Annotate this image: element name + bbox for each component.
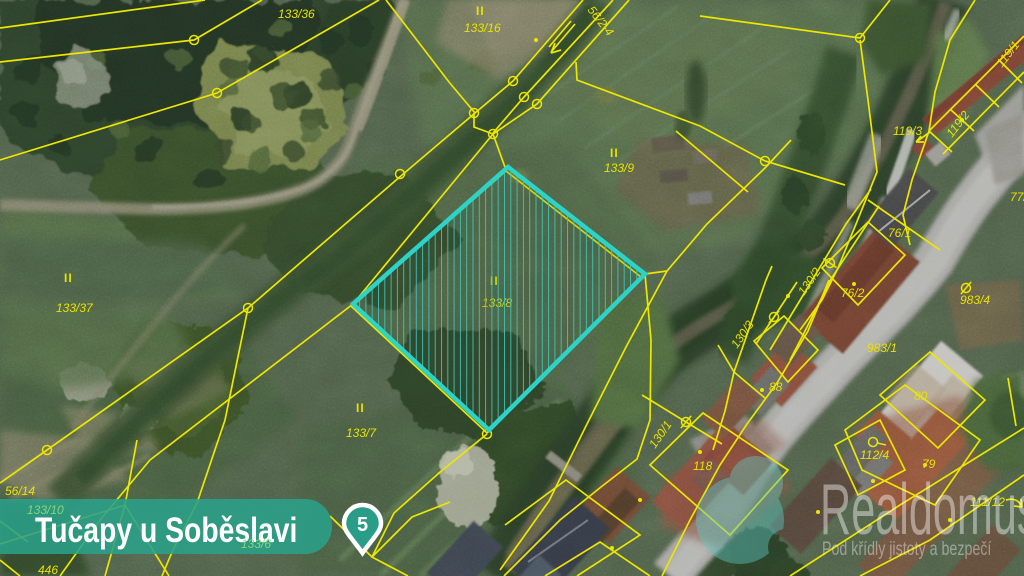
svg-text:133/10: 133/10 <box>27 503 64 517</box>
svg-text:76/1: 76/1 <box>888 226 911 240</box>
svg-text:88: 88 <box>769 380 783 394</box>
svg-text:983/1: 983/1 <box>867 341 897 355</box>
svg-text:133/7: 133/7 <box>346 426 377 440</box>
svg-text:446: 446 <box>38 563 58 576</box>
svg-text:II: II <box>64 271 73 285</box>
svg-text:II: II <box>476 4 485 18</box>
svg-text:II: II <box>356 401 365 415</box>
svg-text:II: II <box>610 146 619 160</box>
svg-text:133/16: 133/16 <box>464 21 501 35</box>
svg-text:133/36: 133/36 <box>278 7 315 21</box>
svg-text:Pod křídly jistoty a bezpečí: Pod křídly jistoty a bezpečí <box>822 538 992 559</box>
svg-text:76/2: 76/2 <box>841 286 865 300</box>
svg-text:133/6: 133/6 <box>241 537 271 551</box>
svg-text:983/4: 983/4 <box>960 293 990 307</box>
svg-text:133/37: 133/37 <box>56 301 94 315</box>
svg-text:77/: 77/ <box>1010 190 1024 204</box>
svg-text:133/9: 133/9 <box>604 161 634 175</box>
svg-text:56/14: 56/14 <box>5 484 35 498</box>
svg-text:80: 80 <box>914 389 928 403</box>
svg-text:112/4: 112/4 <box>860 448 889 462</box>
svg-text:5: 5 <box>357 514 368 536</box>
svg-text:118: 118 <box>693 459 712 473</box>
svg-text:119/3: 119/3 <box>893 124 922 138</box>
